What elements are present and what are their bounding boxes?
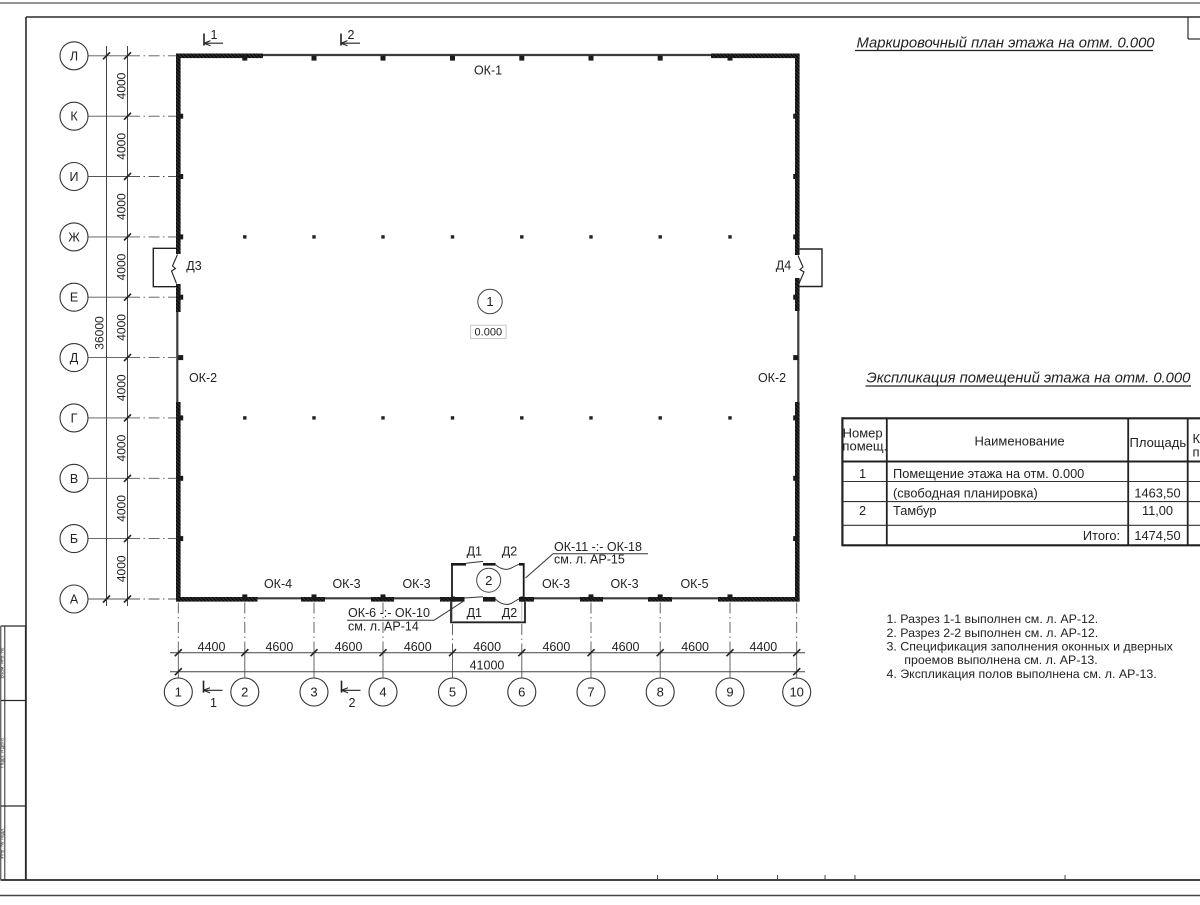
svg-text:помещ.: помещ. — [842, 439, 887, 454]
svg-text:7: 7 — [587, 685, 594, 700]
svg-text:ОК-6 -:- ОК-10: ОК-6 -:- ОК-10 — [348, 606, 430, 620]
svg-text:ОК-3: ОК-3 — [542, 577, 570, 591]
svg-text:41000: 41000 — [470, 659, 505, 673]
svg-text:6: 6 — [518, 685, 525, 700]
svg-text:(свободная планировка): (свободная планировка) — [893, 486, 1038, 501]
svg-text:2: 2 — [348, 28, 355, 42]
svg-text:2: 2 — [485, 573, 492, 588]
svg-text:ОК-3: ОК-3 — [402, 577, 430, 591]
svg-text:1: 1 — [859, 466, 866, 481]
svg-text:К: К — [70, 110, 78, 124]
svg-text:см. л. АР-14: см. л. АР-14 — [348, 620, 419, 634]
svg-text:4000: 4000 — [114, 374, 128, 401]
svg-text:1474,50: 1474,50 — [1134, 528, 1180, 543]
svg-text:Взам. инв. №: Взам. инв. № — [0, 648, 6, 679]
svg-text:2: 2 — [349, 696, 356, 710]
svg-text:Итого:: Итого: — [1083, 528, 1120, 543]
svg-text:Д1: Д1 — [467, 544, 482, 558]
svg-text:Ж: Ж — [68, 230, 80, 244]
svg-text:9: 9 — [726, 685, 733, 700]
svg-text:4000: 4000 — [114, 555, 128, 582]
svg-text:по: по — [1193, 444, 1200, 459]
svg-text:Тамбур: Тамбур — [893, 503, 936, 518]
svg-text:И: И — [70, 170, 79, 184]
svg-text:4: 4 — [379, 685, 386, 700]
svg-text:1463,50: 1463,50 — [1134, 486, 1180, 501]
svg-text:4000: 4000 — [114, 314, 128, 341]
svg-text:Д4: Д4 — [776, 259, 791, 273]
svg-text:Наименование: Наименование — [975, 434, 1065, 449]
svg-text:ОК-2: ОК-2 — [189, 371, 217, 385]
svg-text:Маркировочный план этажа на от: Маркировочный план этажа на отм. 0.000 — [857, 36, 1156, 52]
svg-text:4600: 4600 — [681, 640, 709, 654]
svg-text:2: 2 — [859, 503, 866, 518]
svg-text:ОК-1: ОК-1 — [474, 64, 502, 78]
svg-text:ОК-3: ОК-3 — [332, 577, 360, 591]
svg-text:4600: 4600 — [473, 640, 501, 654]
svg-text:4000: 4000 — [114, 495, 128, 522]
svg-text:Подп. и дата: Подп. и дата — [0, 738, 6, 768]
svg-text:4600: 4600 — [265, 640, 293, 654]
svg-text:Д3: Д3 — [186, 259, 201, 273]
svg-text:Д2: Д2 — [502, 606, 517, 620]
svg-text:4400: 4400 — [198, 640, 226, 654]
svg-text:Экспликация помещений этажа на: Экспликация помещений этажа на отм. 0.00… — [867, 370, 1192, 386]
svg-text:10: 10 — [789, 685, 803, 700]
svg-text:Инв. № подл.: Инв. № подл. — [0, 827, 6, 858]
svg-text:проемов выполнена см. л. АР-13: проемов выполнена см. л. АР-13. — [904, 653, 1097, 667]
svg-text:2: 2 — [241, 685, 248, 700]
svg-text:4000: 4000 — [114, 434, 128, 461]
svg-text:Помещение этажа на отм. 0.000: Помещение этажа на отм. 0.000 — [893, 466, 1084, 481]
svg-text:11,00: 11,00 — [1142, 503, 1173, 518]
svg-text:4600: 4600 — [335, 640, 363, 654]
svg-text:ОК-4: ОК-4 — [264, 577, 292, 591]
svg-text:4000: 4000 — [114, 193, 128, 220]
svg-text:4000: 4000 — [114, 72, 128, 99]
svg-text:Л: Л — [70, 49, 78, 63]
svg-text:ОК-5: ОК-5 — [680, 577, 708, 591]
svg-text:0.000: 0.000 — [475, 326, 503, 338]
svg-text:4600: 4600 — [612, 640, 640, 654]
svg-text:4400: 4400 — [749, 640, 777, 654]
svg-text:1: 1 — [210, 696, 217, 710]
svg-text:А: А — [70, 593, 79, 607]
svg-text:Е: Е — [70, 291, 78, 305]
svg-text:4600: 4600 — [542, 640, 570, 654]
svg-text:Площадь: Площадь — [1130, 435, 1187, 450]
svg-text:4000: 4000 — [114, 133, 128, 160]
svg-text:36000: 36000 — [92, 316, 106, 350]
svg-text:Д: Д — [70, 351, 79, 365]
svg-text:1. Разрез 1-1 выполнен см. л.: 1. Разрез 1-1 выполнен см. л. АР-12. — [887, 612, 1099, 626]
svg-text:1: 1 — [211, 28, 218, 42]
svg-text:Б: Б — [70, 532, 78, 546]
svg-text:В: В — [70, 472, 78, 486]
svg-text:Д2: Д2 — [502, 544, 517, 558]
svg-text:3. Спецификация заполнения око: 3. Спецификация заполнения оконных и две… — [887, 640, 1174, 654]
svg-text:5: 5 — [449, 685, 456, 700]
svg-text:см. л. АР-15: см. л. АР-15 — [554, 553, 625, 567]
svg-text:4. Экспликация полов выполнена: 4. Экспликация полов выполнена см. л. АР… — [887, 667, 1157, 681]
svg-text:4600: 4600 — [404, 640, 432, 654]
svg-text:8: 8 — [657, 685, 664, 700]
svg-text:1: 1 — [175, 685, 182, 700]
svg-text:3: 3 — [310, 685, 317, 700]
svg-text:Д1: Д1 — [467, 606, 482, 620]
svg-text:2. Разрез 2-2 выполнен см. л.: 2. Разрез 2-2 выполнен см. л. АР-12. — [887, 626, 1099, 640]
svg-text:ОК-3: ОК-3 — [610, 577, 638, 591]
svg-text:4000: 4000 — [114, 253, 128, 280]
svg-text:1: 1 — [486, 294, 493, 309]
svg-text:Г: Г — [71, 411, 78, 425]
svg-text:ОК-2: ОК-2 — [758, 371, 786, 385]
